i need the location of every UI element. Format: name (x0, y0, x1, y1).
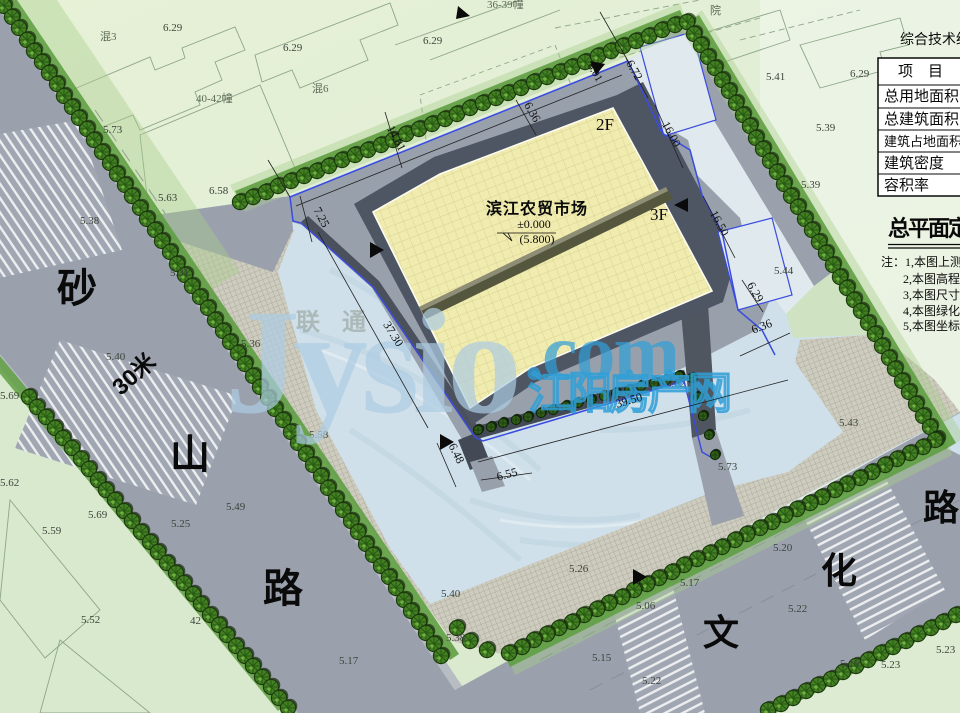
svg-text:建筑占地面积: 建筑占地面积 (884, 134, 960, 149)
svg-text:5.63: 5.63 (158, 192, 178, 204)
svg-text:综合技术经济指标: 综合技术经济指标 (900, 32, 960, 48)
svg-text:6.29: 6.29 (163, 22, 183, 34)
svg-text:±0.000: ±0.000 (517, 217, 551, 231)
svg-text:文: 文 (703, 613, 739, 653)
svg-text:40-42幢: 40-42幢 (196, 91, 233, 105)
svg-text:5.19: 5.19 (840, 658, 860, 670)
svg-text:5.31: 5.31 (170, 267, 189, 279)
svg-text:Jysio: Jysio (225, 279, 517, 445)
svg-text:5.22: 5.22 (788, 603, 807, 615)
svg-text:砂: 砂 (57, 266, 97, 311)
svg-text:总平面定位图: 总平面定位图 (888, 216, 960, 241)
svg-text:5.39: 5.39 (816, 122, 836, 134)
svg-text:6.58: 6.58 (209, 185, 229, 197)
svg-text:5.73: 5.73 (103, 124, 123, 136)
svg-text:3,本图尺寸以米计: 3,本图尺寸以米计 (903, 288, 960, 302)
svg-text:36-39幢: 36-39幢 (487, 0, 524, 11)
svg-text:5.49: 5.49 (226, 501, 246, 513)
svg-text:路: 路 (923, 488, 960, 528)
svg-text:总建筑面积: 总建筑面积 (884, 111, 959, 128)
svg-text:5.06: 5.06 (636, 600, 656, 612)
svg-text:2F: 2F (596, 115, 614, 134)
svg-text:5.15: 5.15 (592, 652, 612, 664)
svg-text:6.29: 6.29 (850, 68, 870, 80)
svg-text:(5.800): (5.800) (520, 232, 555, 246)
svg-text:3F: 3F (650, 205, 668, 224)
svg-text:6.29: 6.29 (283, 42, 303, 54)
svg-text:总用地面积: 总用地面积 (884, 88, 959, 105)
svg-text:混6: 混6 (312, 82, 329, 95)
svg-text:项 目: 项 目 (898, 63, 943, 80)
svg-text:院: 院 (710, 3, 721, 17)
svg-text:5.25: 5.25 (171, 518, 191, 530)
svg-text:5.41: 5.41 (766, 71, 785, 83)
svg-text:滨江农贸市场: 滨江农贸市场 (486, 199, 588, 218)
svg-text:5.69: 5.69 (88, 509, 108, 521)
svg-text:5.38: 5.38 (446, 632, 466, 644)
svg-text:容积率: 容积率 (884, 177, 929, 194)
svg-text:5.40: 5.40 (106, 351, 126, 363)
svg-text:5.17: 5.17 (680, 577, 700, 589)
svg-text:山: 山 (170, 432, 210, 477)
svg-text:2,本图高程为黄海: 2,本图高程为黄海 (903, 271, 960, 286)
svg-text:5.43: 5.43 (839, 417, 859, 429)
svg-text:化: 化 (821, 551, 857, 591)
svg-text:5.22: 5.22 (642, 675, 661, 687)
svg-text:5.62: 5.62 (0, 477, 19, 489)
svg-text:5.23: 5.23 (936, 644, 956, 656)
svg-text:5,本图坐标定位均: 5,本图坐标定位均 (903, 318, 960, 333)
svg-text:6.29: 6.29 (423, 35, 443, 47)
svg-text:5.52: 5.52 (81, 614, 100, 626)
svg-text:混3: 混3 (100, 30, 117, 43)
svg-text:4,本图绿化仅为示: 4,本图绿化仅为示 (903, 303, 960, 318)
svg-text:路: 路 (263, 566, 304, 611)
svg-text:5.20: 5.20 (773, 542, 793, 554)
svg-text:42: 42 (190, 615, 201, 627)
svg-text:5.39: 5.39 (801, 179, 821, 191)
svg-text:5.73: 5.73 (718, 461, 738, 473)
svg-text:5.38: 5.38 (80, 215, 100, 227)
svg-text:注：1,本图上测量坐标: 注：1,本图上测量坐标 (881, 254, 960, 269)
svg-text:5.40: 5.40 (441, 588, 461, 600)
svg-text:5.17: 5.17 (339, 655, 359, 667)
svg-text:5.59: 5.59 (42, 525, 62, 537)
svg-text:建筑密度: 建筑密度 (884, 155, 944, 172)
svg-text:5.69: 5.69 (0, 390, 20, 402)
svg-text:5.23: 5.23 (881, 659, 901, 671)
svg-text:5.44: 5.44 (774, 265, 794, 277)
svg-text:5.26: 5.26 (569, 563, 589, 575)
